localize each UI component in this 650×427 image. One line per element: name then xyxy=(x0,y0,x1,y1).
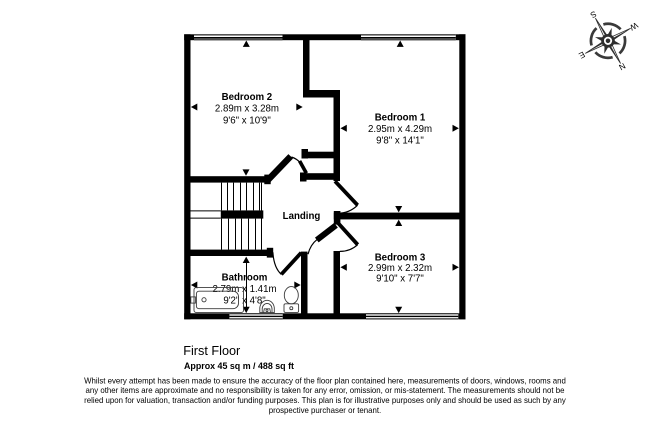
svg-text:9'6" x 10'9": 9'6" x 10'9" xyxy=(223,115,271,126)
svg-text:prospective purchaser or tenan: prospective purchaser or tenant. xyxy=(269,406,382,415)
svg-text:Bedroom 3: Bedroom 3 xyxy=(375,252,426,263)
svg-text:Approx 45 sq m / 488 sq ft: Approx 45 sq m / 488 sq ft xyxy=(184,361,294,371)
svg-text:9'10" x 7'7": 9'10" x 7'7" xyxy=(376,273,424,284)
svg-text:Bedroom 2: Bedroom 2 xyxy=(222,92,273,103)
svg-text:relied upon for valuation, tra: relied upon for valuation, transaction a… xyxy=(84,396,566,405)
svg-text:First Floor: First Floor xyxy=(183,344,241,358)
svg-text:any other items are approximat: any other items are approximate and no r… xyxy=(86,386,566,395)
svg-text:Bathroom: Bathroom xyxy=(222,272,268,283)
svg-text:Landing: Landing xyxy=(283,211,321,222)
svg-text:9'2" x 4'8": 9'2" x 4'8" xyxy=(223,295,266,306)
svg-text:2.79m x 1.41m: 2.79m x 1.41m xyxy=(212,284,276,295)
svg-text:9'8" x 14'1": 9'8" x 14'1" xyxy=(376,135,424,146)
svg-text:Bedroom 1: Bedroom 1 xyxy=(375,112,426,123)
svg-text:Whilst every attempt has been: Whilst every attempt has been made to en… xyxy=(84,376,566,385)
svg-text:2.89m x 3.28m: 2.89m x 3.28m xyxy=(215,104,279,115)
svg-text:2.95m x 4.29m: 2.95m x 4.29m xyxy=(368,124,432,135)
